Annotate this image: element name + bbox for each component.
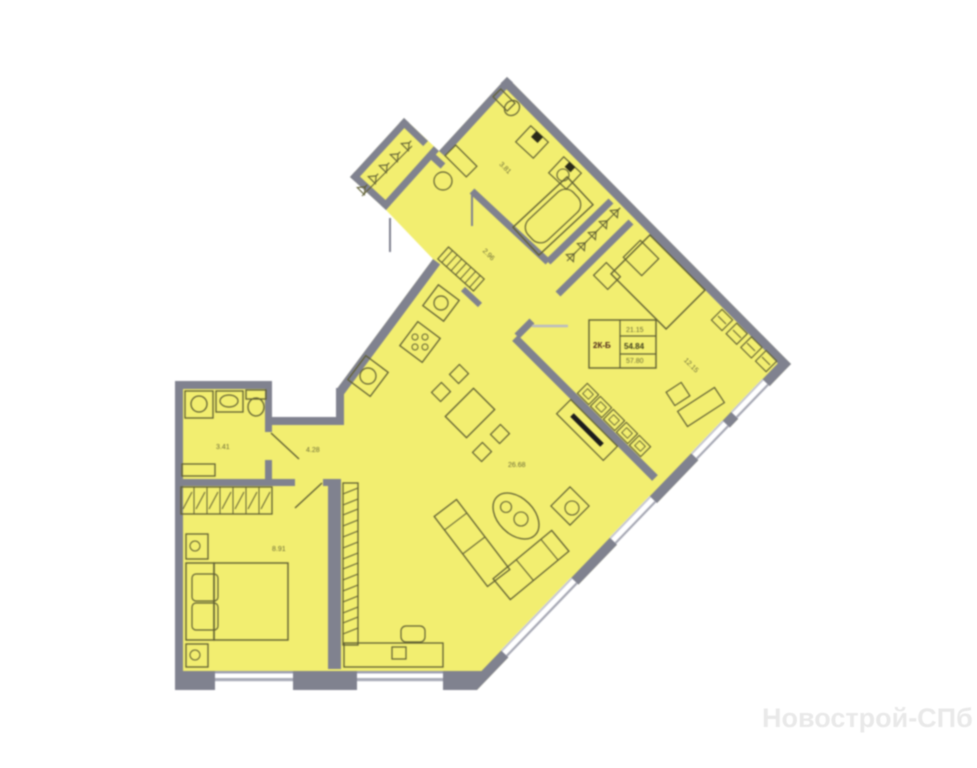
svg-text:54.84: 54.84 <box>624 342 645 351</box>
svg-text:2К-Б: 2К-Б <box>593 341 611 350</box>
svg-text:21.15: 21.15 <box>626 327 644 334</box>
svg-text:4.28: 4.28 <box>306 447 320 454</box>
svg-text:8.91: 8.91 <box>272 546 286 553</box>
svg-text:26.68: 26.68 <box>508 462 526 469</box>
svg-text:3.41: 3.41 <box>216 444 230 451</box>
svg-text:57.80: 57.80 <box>626 358 644 365</box>
